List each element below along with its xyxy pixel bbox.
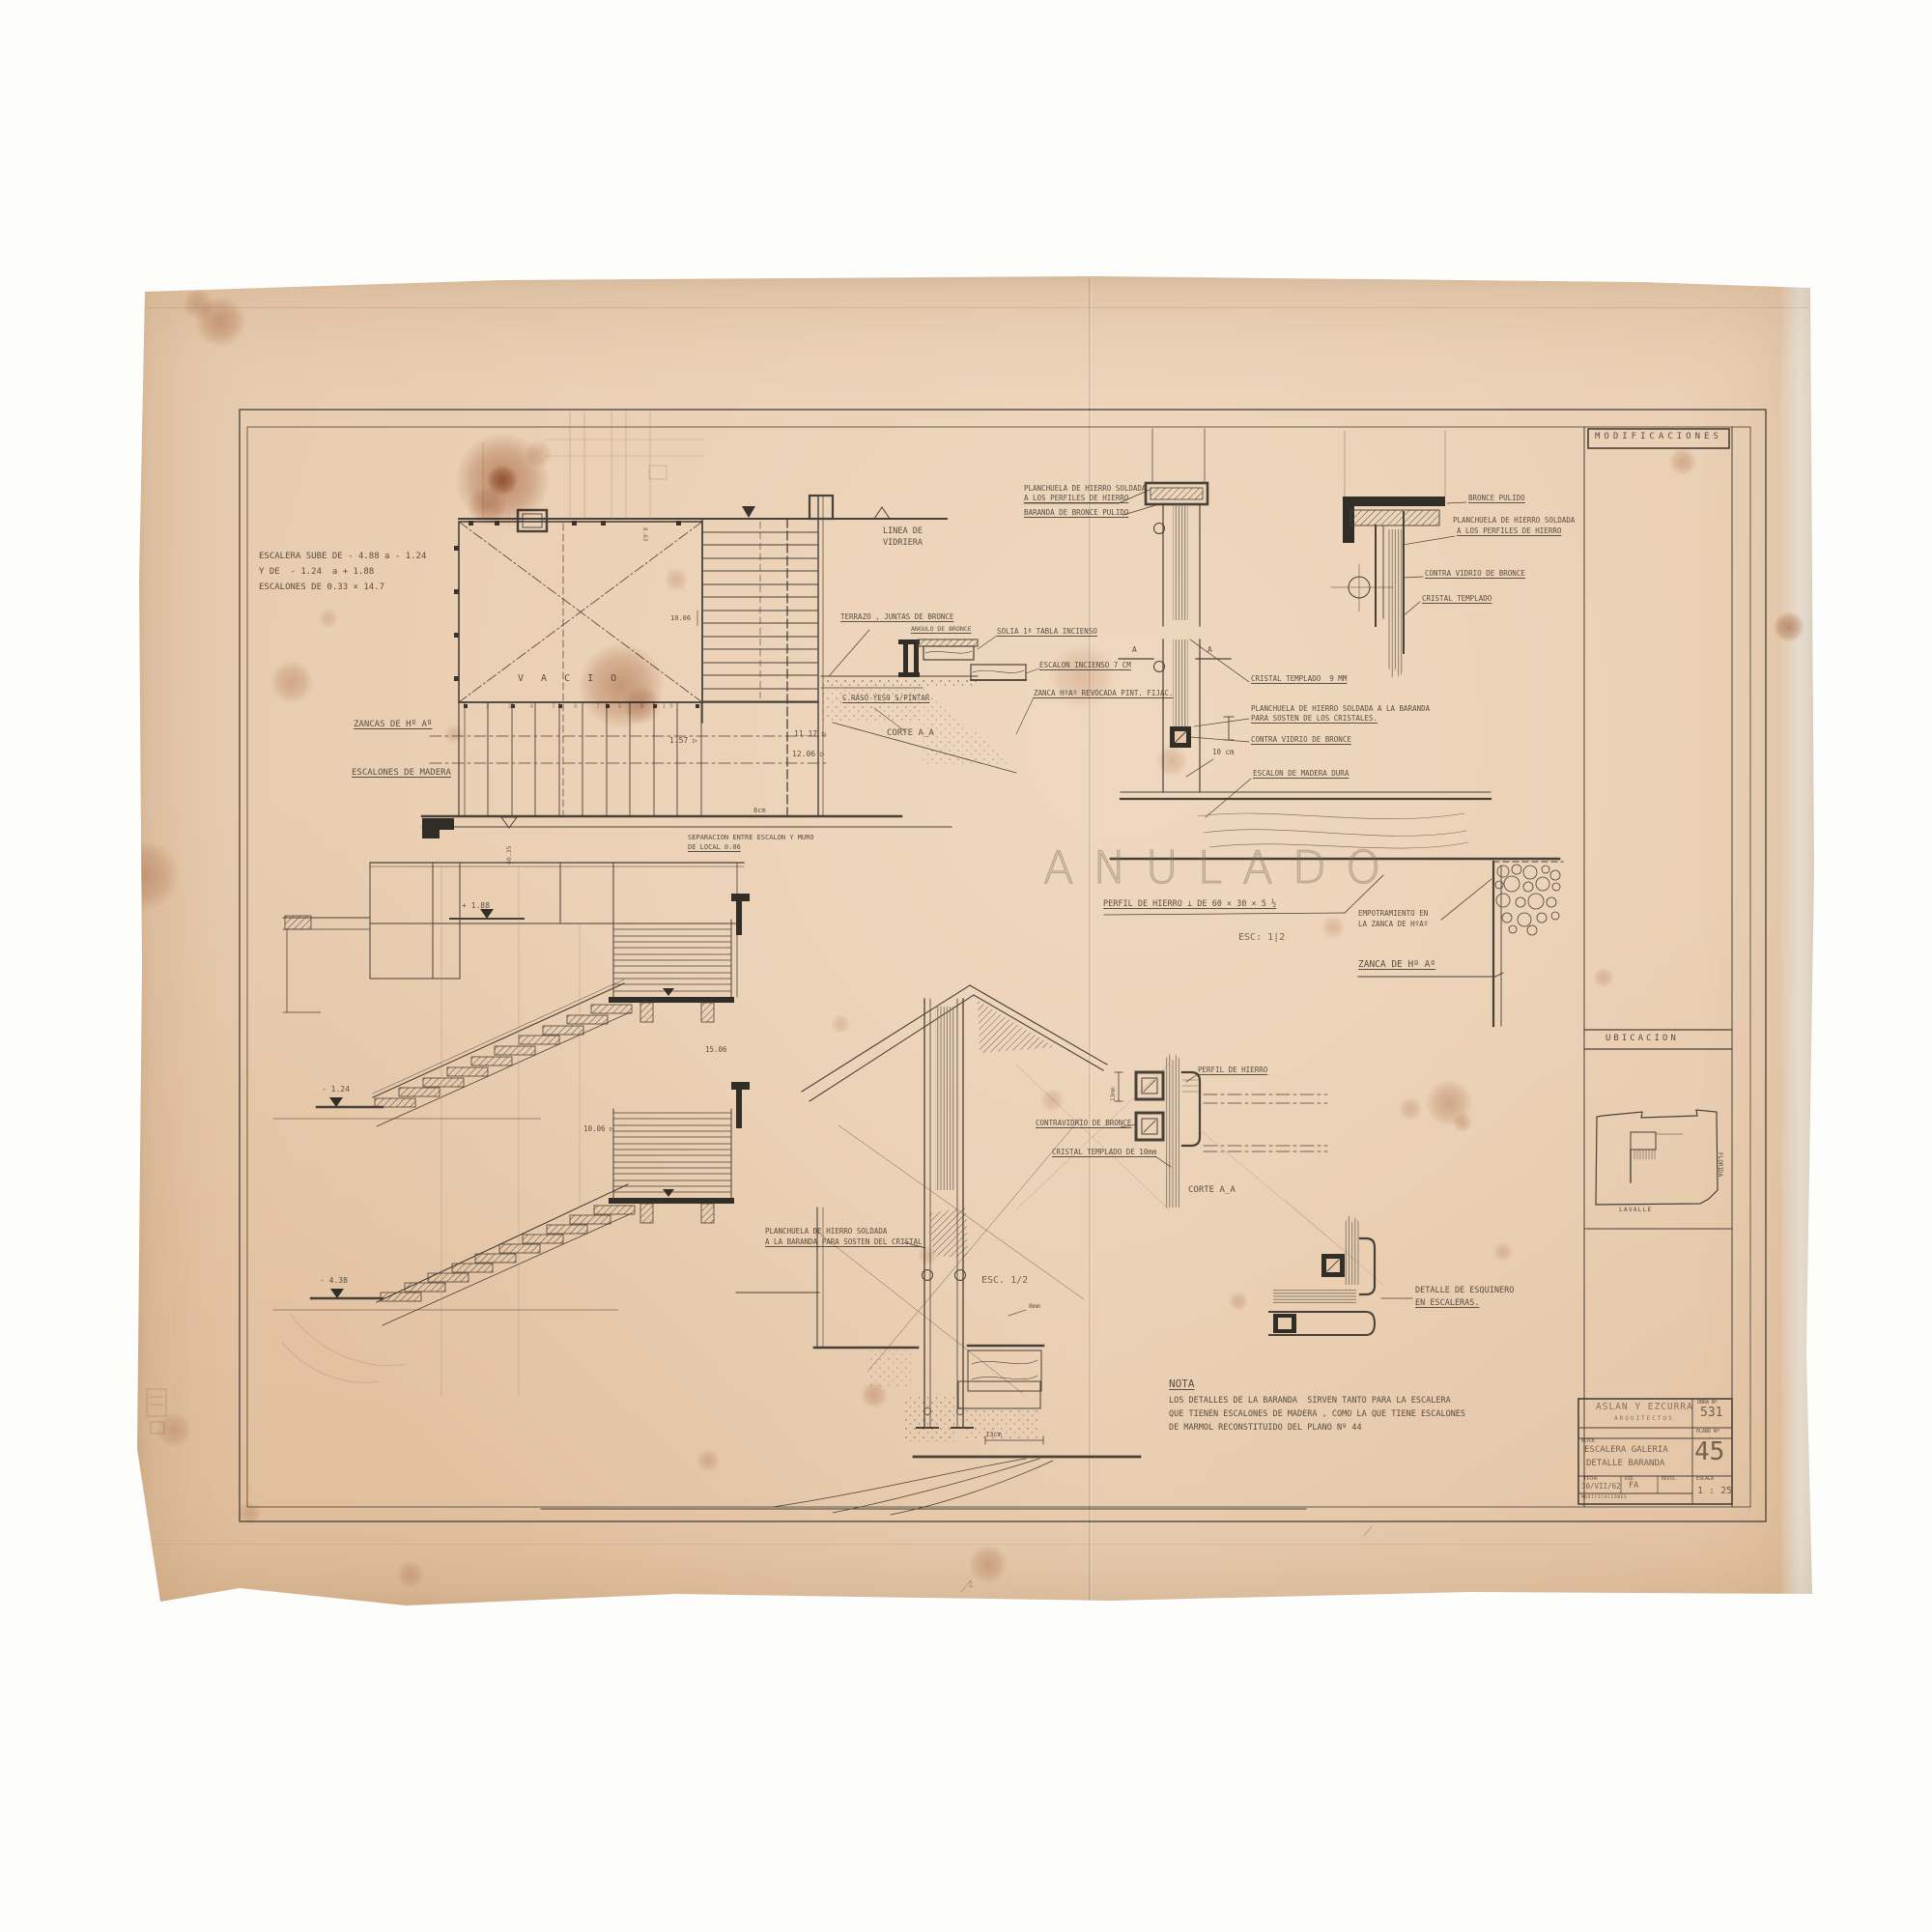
drawing-linework — [0, 0, 1932, 1932]
baranda-detail-bottom — [541, 985, 1306, 1515]
ubicacion-map — [1596, 1110, 1718, 1205]
border-frame — [240, 410, 1766, 1521]
baranda-section-left — [1024, 429, 1563, 1026]
rail-cap-detail-top-right — [1331, 431, 1466, 680]
scanned-blueprint-page: ESCALERA SUBE DE - 4.88 a - 1.24Y DE - 1… — [0, 0, 1932, 1932]
margin-pencil-marks — [147, 1389, 1372, 1592]
stair-corner-detail — [1198, 1128, 1412, 1335]
plan-view — [422, 412, 952, 838]
stain — [87, 1047, 141, 1101]
rail-post-plan-detail — [1016, 1053, 1327, 1209]
title-block — [1578, 1399, 1732, 1504]
paper-sheet: ESCALERA SUBE DE - 4.88 a - 1.24Y DE - 1… — [0, 0, 1932, 1932]
stair-elevation — [273, 863, 750, 1396]
terrazzo-step-section — [821, 630, 1039, 773]
